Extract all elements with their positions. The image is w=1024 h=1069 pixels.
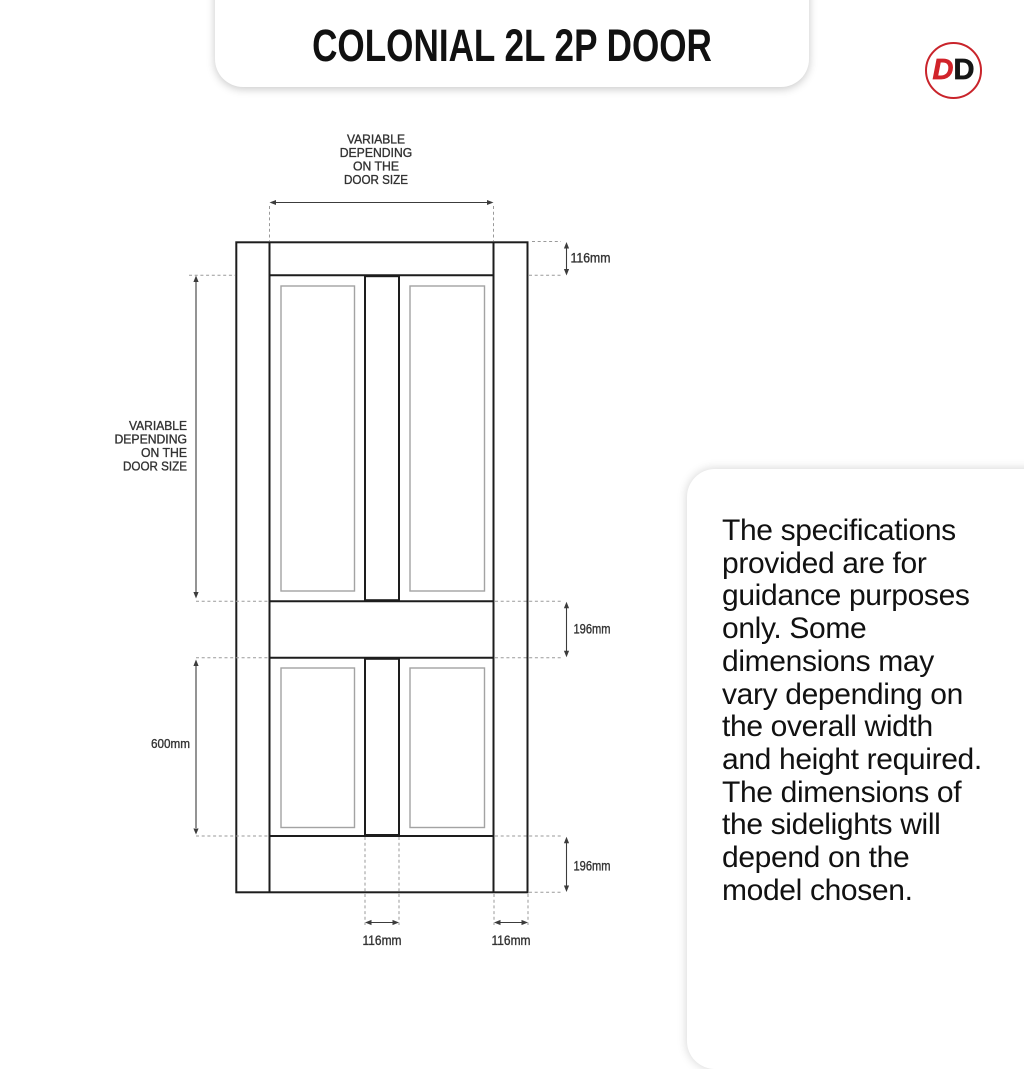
svg-text:DOOR SIZE: DOOR SIZE bbox=[123, 460, 187, 474]
svg-text:196mm: 196mm bbox=[574, 858, 611, 874]
svg-text:116mm: 116mm bbox=[571, 250, 611, 266]
svg-text:DEPENDING: DEPENDING bbox=[115, 432, 188, 446]
svg-text:DEPENDING: DEPENDING bbox=[340, 146, 413, 160]
svg-text:196mm: 196mm bbox=[574, 621, 611, 637]
svg-text:VARIABLE: VARIABLE bbox=[347, 133, 405, 147]
svg-text:ON THE: ON THE bbox=[353, 160, 399, 174]
svg-text:600mm: 600mm bbox=[151, 736, 190, 751]
svg-text:116mm: 116mm bbox=[363, 932, 402, 948]
svg-text:ON THE: ON THE bbox=[141, 446, 187, 460]
svg-text:116mm: 116mm bbox=[492, 932, 531, 948]
svg-text:DOOR SIZE: DOOR SIZE bbox=[344, 173, 408, 187]
svg-text:VARIABLE: VARIABLE bbox=[129, 419, 187, 433]
